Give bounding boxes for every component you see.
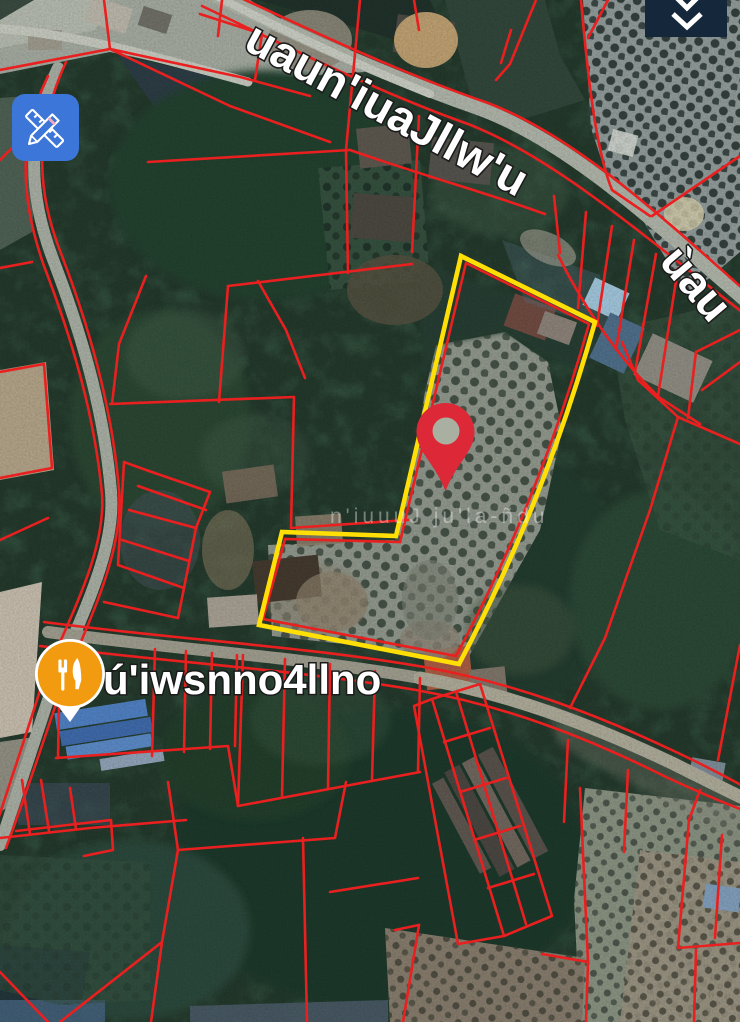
svg-text:n'iuuuJ ju'la-ñdu: n'iuuuJ ju'la-ñdu — [330, 505, 548, 528]
svg-text:ú'iwsnno4llno: ú'iwsnno4llno — [103, 656, 381, 703]
